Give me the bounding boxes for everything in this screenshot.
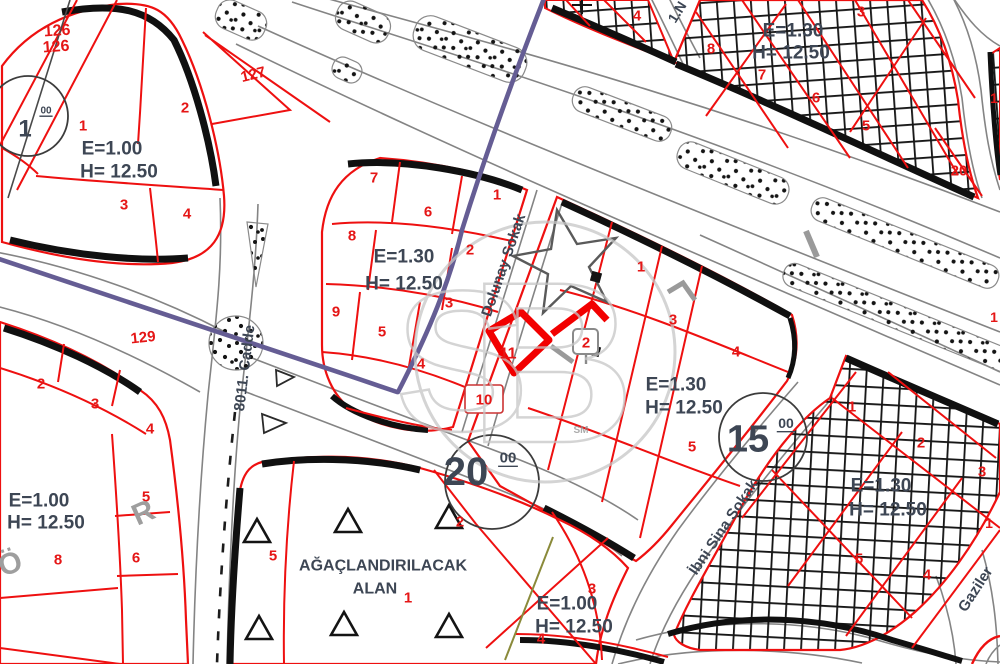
d-area-title-line2: ALAN [353, 581, 397, 598]
b-parcel-7: 7 [370, 169, 378, 186]
b-parcel-5: 5 [378, 323, 386, 340]
g-parcel-2: 2 [37, 375, 45, 392]
b-parcel-2: 2 [466, 241, 474, 258]
block-circle-15-number: 15 [727, 418, 769, 460]
setback-hatch [10, 240, 188, 259]
c-emsal: E=1.30 [646, 375, 707, 396]
g-parcel-3: 3 [91, 395, 99, 412]
d-parcel-1: 1 [404, 589, 412, 606]
setback-hatch [4, 328, 140, 392]
h-parcel-4: 4 [633, 7, 642, 24]
b-hmax: H= 12.50 [365, 274, 443, 295]
junction-wedge-island [247, 222, 268, 287]
g-hmax: H= 12.50 [7, 513, 85, 534]
a-parcel-1: 1 [79, 117, 87, 134]
block-circle-20-suffix: 00 [500, 449, 517, 466]
watermark-sm: SM [574, 425, 589, 436]
h-parcel-7: 7 [758, 66, 766, 83]
h-parcel-1: 1 [990, 90, 998, 106]
c-parcel-11: 11 [500, 346, 517, 363]
c-parcel-10: 10 [476, 391, 493, 408]
g-emsal: E=1.00 [9, 491, 70, 512]
watermark: S B SM [395, 222, 675, 491]
b-emsal: E=1.30 [374, 247, 435, 268]
parcel-129: 129 [130, 328, 157, 348]
h-parcel-5: 5 [862, 117, 870, 134]
setback-hatch [788, 318, 795, 378]
c-hmax: H= 12.50 [645, 398, 723, 419]
h-hmax: H= 12.50 [752, 43, 830, 64]
a-hmax: H= 12.50 [80, 162, 158, 183]
c-parcel-1: 1 [637, 258, 645, 275]
i-parcel-1: 1 [848, 398, 856, 415]
i-parcel-5: 5 [855, 550, 863, 567]
junction-arrow-marks [262, 370, 294, 433]
i-parcel-3: 3 [978, 463, 986, 480]
i-emsal: E=1.30 [851, 476, 912, 497]
d-emsal: E=1.00 [537, 594, 598, 615]
b-parcel-3: 3 [445, 294, 453, 311]
a-parcel-4: 4 [183, 205, 192, 222]
h-parcel-8: 8 [707, 40, 715, 57]
b-parcel-6: 6 [424, 203, 432, 220]
roadside-parcel-1: 1 [990, 309, 998, 325]
b-parcel-9: 9 [332, 303, 340, 320]
setback-hatch [230, 488, 240, 664]
block-circle-15-suffix: 00 [778, 415, 794, 431]
setback-hatch [544, 508, 634, 558]
g-parcel-8: 8 [54, 551, 62, 568]
b-parcel-1: 1 [493, 186, 501, 203]
cadde-8011-west-edge [193, 198, 221, 664]
c-door-plate-2: 2 [582, 334, 590, 351]
i-hmax: H= 12.50 [849, 500, 927, 521]
h-parcel-6: 6 [812, 89, 820, 106]
g-parcel-4: 4 [146, 420, 155, 437]
h-emsal: E=1.30 [763, 21, 824, 42]
c-parcel-3: 3 [669, 311, 677, 328]
zoning-plan-map: S B SM 1261261001271291234E=1.00H= 12.50… [0, 0, 1000, 664]
d-hmax: H= 12.50 [535, 617, 613, 638]
c-parcel-4: 4 [732, 343, 741, 360]
a-parcel-2: 2 [181, 99, 189, 116]
road-letter-o: Ö [0, 545, 27, 584]
h-parcel-20: 20 [951, 162, 968, 179]
g-parcel-6: 6 [132, 549, 140, 566]
d-area-title-line1: AĞAÇLANDIRILACAK [299, 556, 467, 575]
block-circle-1-suffix: 00 [40, 106, 52, 117]
i-parcel-2: 2 [917, 434, 925, 451]
b-parcel-4: 4 [417, 355, 426, 372]
street-1n: 1.N [664, 0, 689, 25]
a-emsal: E=1.00 [82, 139, 143, 160]
i-parcel-4: 4 [923, 566, 932, 583]
h-parcel-3: 3 [857, 3, 865, 20]
ne-corner-arc [952, 0, 1000, 46]
b-parcel-8: 8 [348, 227, 356, 244]
parcel-126-b: 126 [42, 38, 70, 57]
d-parcel-2: 2 [456, 513, 464, 530]
a-parcel-3: 3 [120, 196, 128, 213]
west-road-south-edge [0, 306, 200, 392]
c-parcel-5: 5 [688, 438, 696, 455]
d-parcel-5: 5 [269, 547, 277, 564]
block-circle-20-number: 20 [444, 450, 489, 494]
block-circle-1-number: 1 [18, 115, 31, 142]
i-right-parcel-1: 1 [985, 515, 993, 531]
